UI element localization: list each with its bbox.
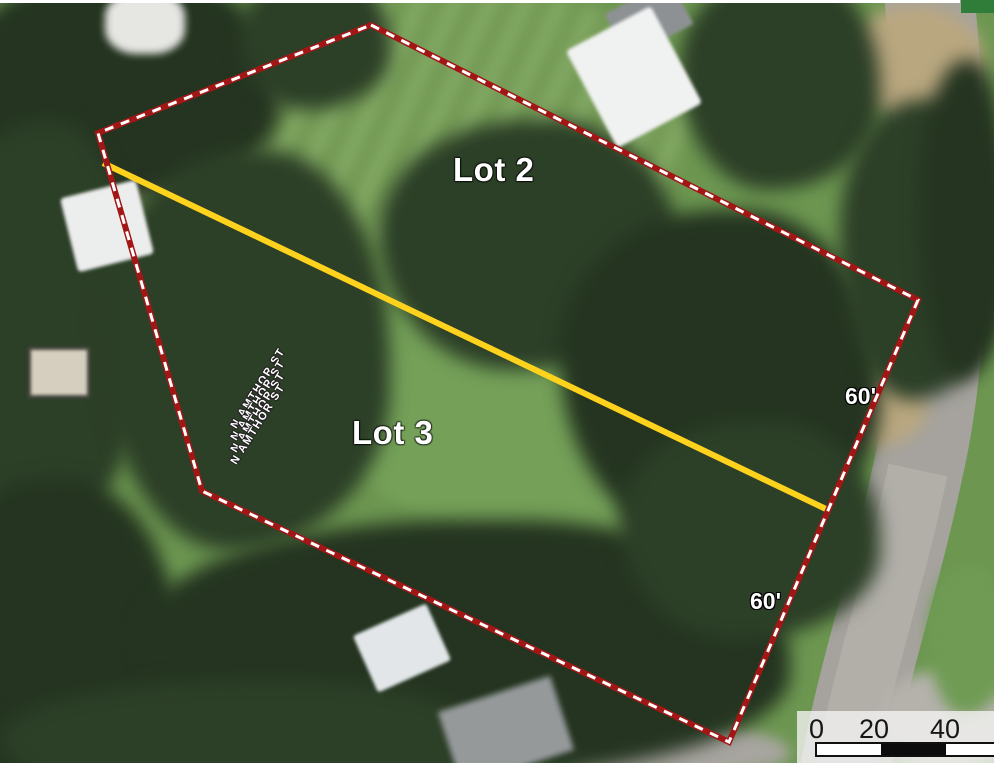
scale-bar-segments	[815, 742, 994, 757]
lot2-label: Lot 2	[453, 151, 534, 189]
aerial-map: N AMTHOR ST N AMTHOR ST N AMTHOR ST N AM…	[0, 0, 994, 768]
top-white-border	[0, 0, 960, 3]
scale-tick-0: 0	[809, 714, 824, 745]
lot3-label: Lot 3	[352, 414, 433, 452]
green-corner-block	[961, 0, 994, 13]
bottom-white-border	[0, 763, 994, 768]
tree-canopy	[100, 150, 390, 550]
scale-segment-white	[817, 744, 881, 755]
building-white-topleft	[105, 0, 185, 54]
scale-tick-40: 40	[930, 714, 960, 745]
scale-tick-20: 20	[859, 714, 889, 745]
scale-segment-black	[881, 744, 946, 755]
dimension-label-60ft-upper: 60'	[845, 383, 876, 410]
scale-bar: 0 20 40	[797, 711, 994, 765]
dimension-label-60ft-lower: 60'	[750, 588, 781, 615]
shed-left	[28, 347, 90, 398]
scale-segment-white	[946, 744, 994, 755]
